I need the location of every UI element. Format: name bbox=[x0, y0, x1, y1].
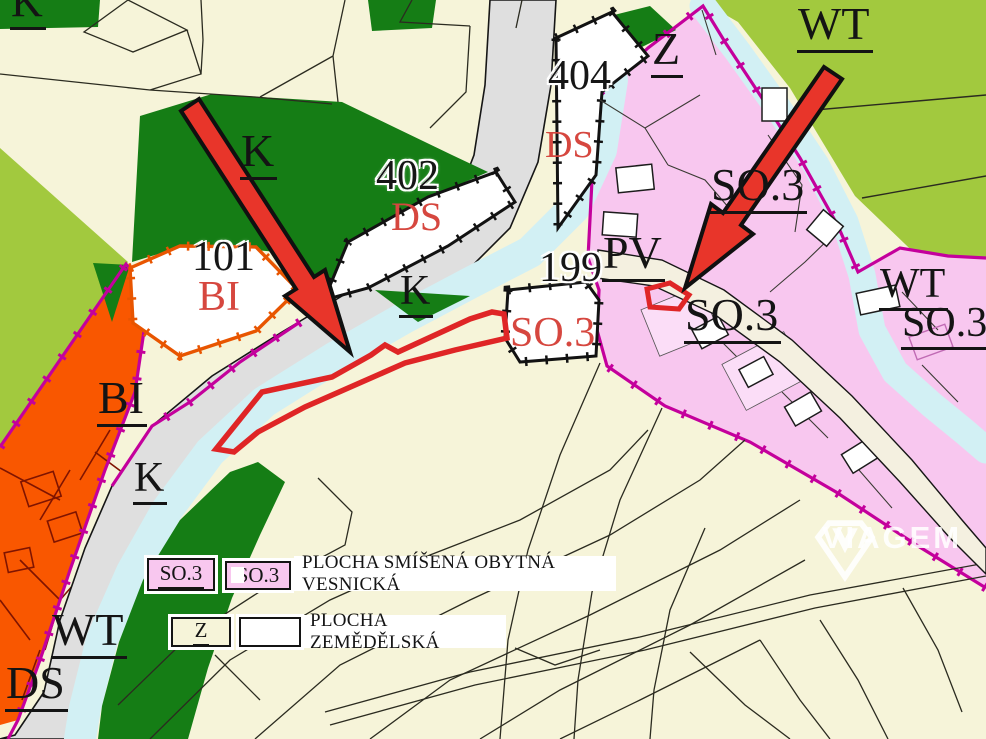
zone-label-k-clipped: K bbox=[10, 0, 46, 30]
zone-label-wt-bottom: WT bbox=[51, 607, 127, 659]
legend-swatch-so3-existing: SO.3 bbox=[225, 561, 291, 590]
zone-label-so3-right: SO.3 bbox=[901, 302, 986, 350]
viagem-gem-icon bbox=[812, 518, 878, 582]
parcel-label-404: 404 bbox=[548, 55, 611, 97]
zone-label-wt-top: WT bbox=[797, 1, 873, 53]
zone-label-so3-mid: SO.3 bbox=[684, 292, 781, 344]
zone-label-ds-402: DS bbox=[391, 197, 442, 237]
legend-row-agricultural: PLOCHA ZEMĚDĚLSKÁ bbox=[302, 615, 506, 648]
zone-label-k: K bbox=[240, 128, 277, 180]
legend-swatch-agricultural-empty bbox=[239, 617, 301, 647]
legend-swatch-chip bbox=[231, 567, 244, 583]
zone-label-pv: PV bbox=[602, 230, 665, 282]
parcel-label-101: 101 bbox=[192, 236, 255, 278]
legend-swatch-z: Z bbox=[171, 617, 231, 647]
zone-label-k-left: K bbox=[133, 457, 167, 505]
legend-description: PLOCHA SMÍŠENÁ OBYTNÁ VESNICKÁ bbox=[294, 552, 616, 596]
zone-label-ds-404: DS bbox=[545, 126, 594, 164]
zone-label-ds-bottom: DS bbox=[5, 660, 68, 712]
legend-swatch-so3-proposed: SO.3 bbox=[147, 558, 215, 591]
legend-swatch-label: SO.3 bbox=[158, 561, 205, 589]
zone-label-bi-left: BI bbox=[97, 375, 147, 427]
zone-label-so3-upper: SO.3 bbox=[710, 162, 807, 214]
zone-label-k-mid: K bbox=[399, 270, 433, 318]
legend-row-mixed-residential: PLOCHA SMÍŠENÁ OBYTNÁ VESNICKÁ bbox=[294, 556, 616, 591]
zone-label-z: Z bbox=[651, 26, 683, 78]
parcel-label-402: 402 bbox=[376, 155, 439, 197]
legend-description: PLOCHA ZEMĚDĚLSKÁ bbox=[302, 610, 506, 654]
parcel-label-199: 199 bbox=[539, 247, 602, 289]
zone-label-bi-101: BI bbox=[198, 276, 240, 318]
viagem-watermark: VIAGEM bbox=[812, 518, 972, 628]
legend-swatch-label: Z bbox=[193, 618, 210, 646]
zone-label-so3-red: SO.3 bbox=[510, 312, 595, 354]
map-viewport: K K 402 DS 404 DS Z WT 101 BI K 199 PV S… bbox=[0, 0, 986, 739]
